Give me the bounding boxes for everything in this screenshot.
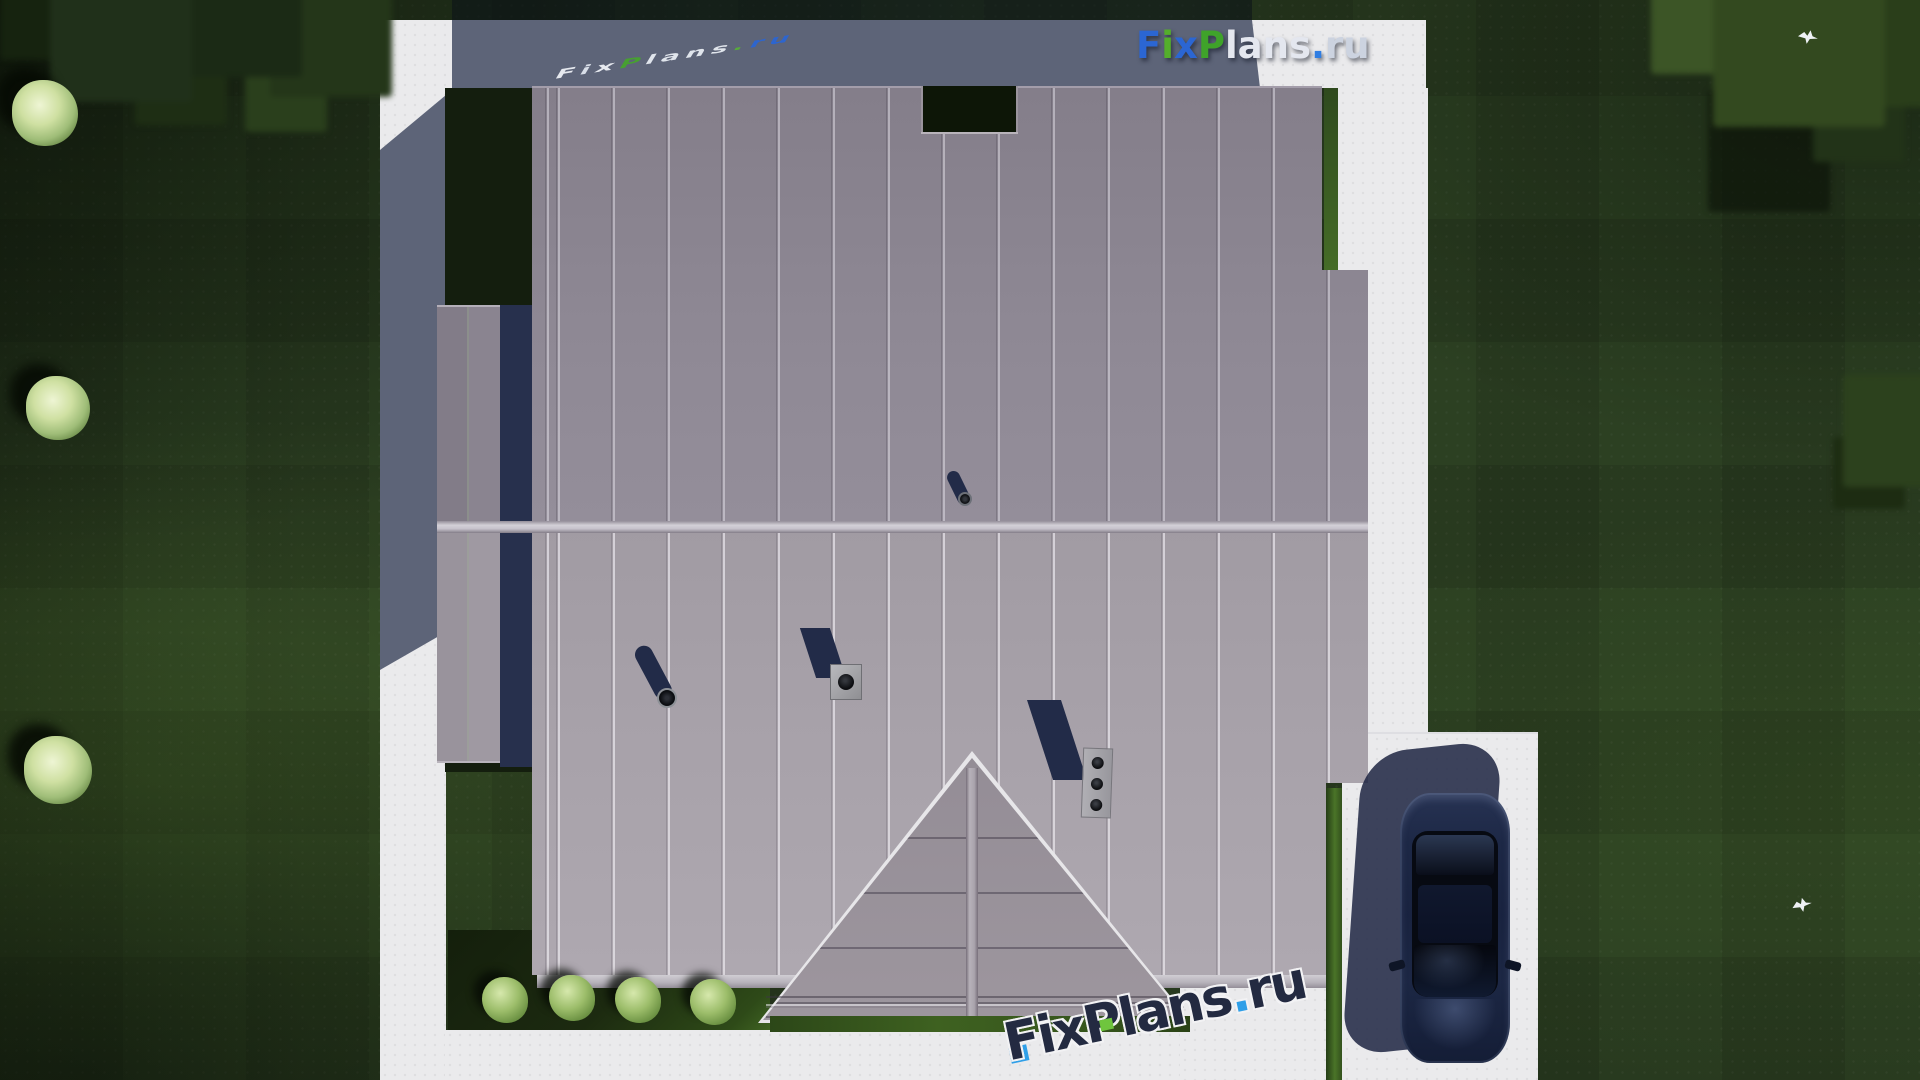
car-hood — [1408, 999, 1502, 1055]
wild-shrub — [26, 376, 90, 440]
tree-canopy-top-left — [30, 20, 32, 22]
brand-letter: i — [1161, 24, 1174, 67]
garden-bush — [615, 977, 661, 1023]
garden-bush — [549, 975, 595, 1021]
lawn-strip-upper — [1324, 88, 1338, 270]
brand-letter: lans — [1225, 24, 1311, 67]
brand-watermark: FixPlans.ru — [1136, 24, 1370, 67]
brand-letter: P — [1198, 24, 1225, 67]
vent-pipe — [958, 492, 972, 506]
brand-letter: F — [1136, 24, 1161, 67]
roof-north-slope — [532, 86, 1368, 527]
wild-shrub — [12, 80, 78, 146]
brand-letter: ru — [1241, 951, 1311, 1022]
car-windshield — [1414, 945, 1496, 997]
brand-letter: . — [1311, 24, 1325, 67]
lawn-strip-driveway — [1326, 788, 1342, 1080]
tree-canopy-right-edge — [1916, 430, 1918, 432]
roof-extension-south — [437, 527, 500, 763]
car-rear-window — [1416, 835, 1494, 875]
car-roof-panel — [1418, 885, 1492, 943]
chimney — [1081, 747, 1113, 818]
porch-gable-ridge — [966, 768, 978, 1020]
roof-extension-gap-shadow — [500, 305, 532, 767]
garden-bush — [690, 979, 736, 1025]
house-shadow-grass-top — [452, 0, 1252, 22]
roof-ridge — [437, 521, 1368, 533]
wild-shrub — [24, 736, 92, 804]
garden-bush — [482, 977, 528, 1023]
roof-opening — [921, 86, 1018, 134]
box-vent-flue — [838, 674, 854, 690]
roof-extension-north — [437, 305, 500, 527]
car — [1400, 793, 1510, 1063]
site-plan-render: FixPlans.ru FixPlans.ru FixPlans.ru — [0, 0, 1920, 1080]
chimney-flue — [1090, 799, 1102, 811]
chimney-flue — [1091, 757, 1103, 769]
vent-pipe — [657, 688, 677, 708]
chimney-flue — [1091, 778, 1103, 790]
brand-letter: x — [1174, 24, 1198, 67]
brand-letter: ru — [1325, 24, 1370, 67]
